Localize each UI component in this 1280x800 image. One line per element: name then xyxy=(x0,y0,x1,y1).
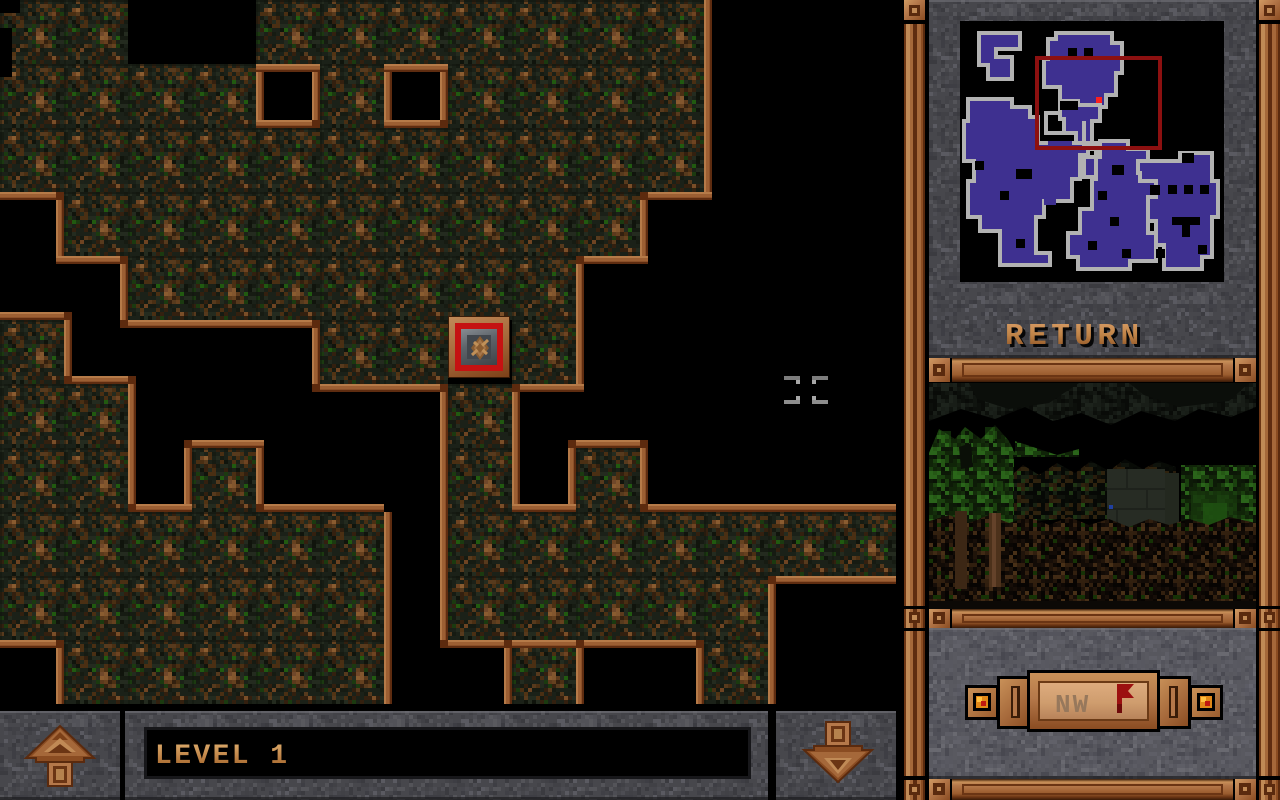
svg-text:NW: NW xyxy=(1055,690,1090,720)
svg-text:RETURN: RETURN xyxy=(1005,319,1144,354)
svg-text:LEVEL 1: LEVEL 1 xyxy=(155,741,289,772)
